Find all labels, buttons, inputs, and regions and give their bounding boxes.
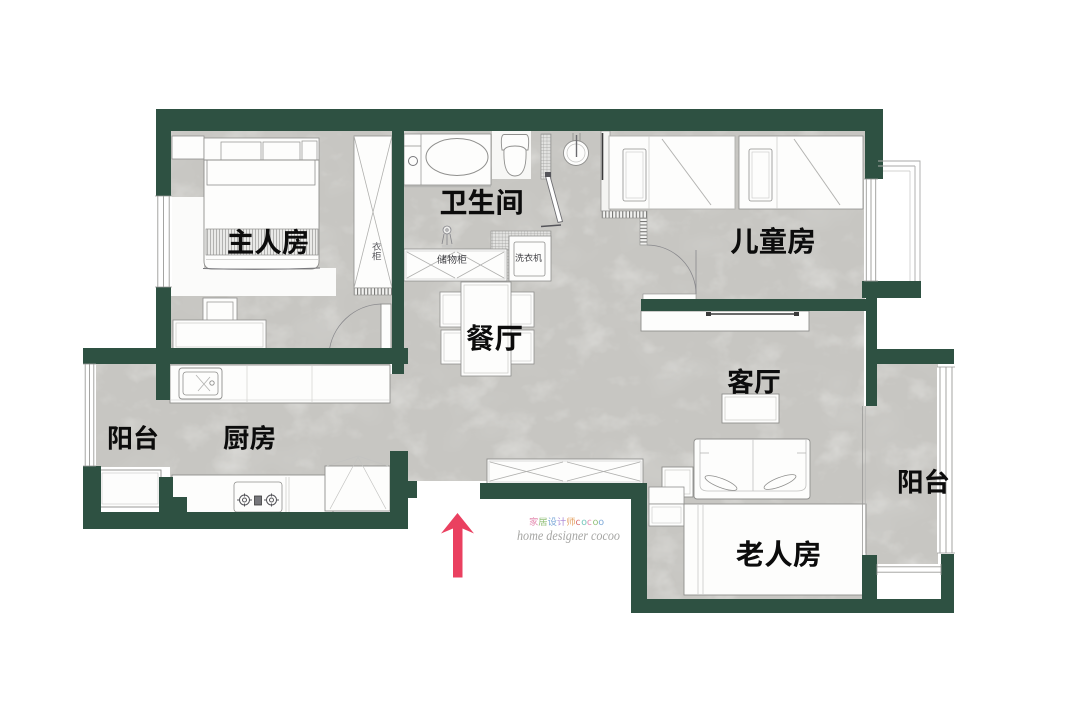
svg-text:home designer cocoo: home designer cocoo bbox=[517, 529, 620, 544]
